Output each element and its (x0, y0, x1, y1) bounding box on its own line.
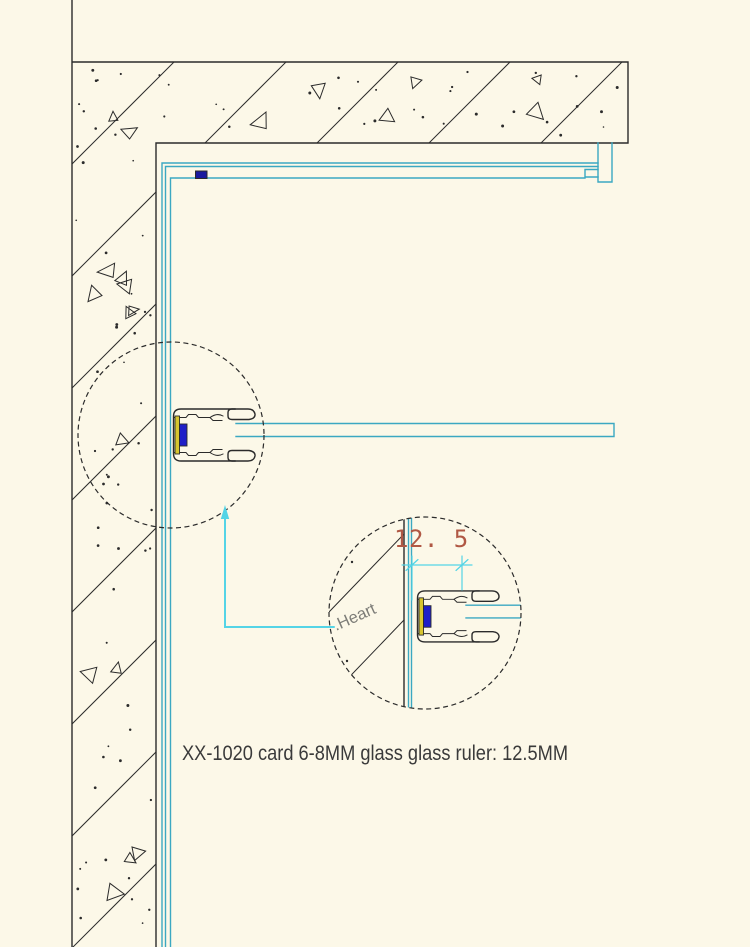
wall-section (0, 0, 750, 947)
leader-arrow (221, 505, 334, 627)
fixing-clip (196, 171, 208, 179)
channel-line-outer (162, 163, 598, 947)
dimension-text: 12. 5 (394, 525, 469, 553)
arrowhead-icon (221, 505, 229, 519)
note-text: .Heart (330, 600, 379, 635)
cad-drawing-canvas: .Heart 12. 5 XX-1020 card 6-8MM glass gl… (0, 0, 750, 947)
clamp-profile-detail-1 (174, 409, 256, 461)
glass-panel (236, 424, 614, 437)
channel-end-notch (585, 170, 598, 178)
detail-2-glass (466, 605, 521, 618)
wall-ceiling-channel (162, 143, 612, 947)
wall-outline (72, 0, 628, 947)
cad-drawing: .Heart 12. 5 XX-1020 card 6-8MM glass gl… (0, 0, 750, 947)
channel-line-inner (171, 178, 586, 947)
dimension-group: 12. 5 (394, 525, 472, 600)
wall-hatch (0, 0, 750, 947)
annotation-text: XX-1020 card 6-8MM glass glass ruler: 12… (182, 742, 568, 765)
channel-end-cap (598, 143, 612, 182)
clamp-profile-detail-2 (418, 591, 500, 642)
